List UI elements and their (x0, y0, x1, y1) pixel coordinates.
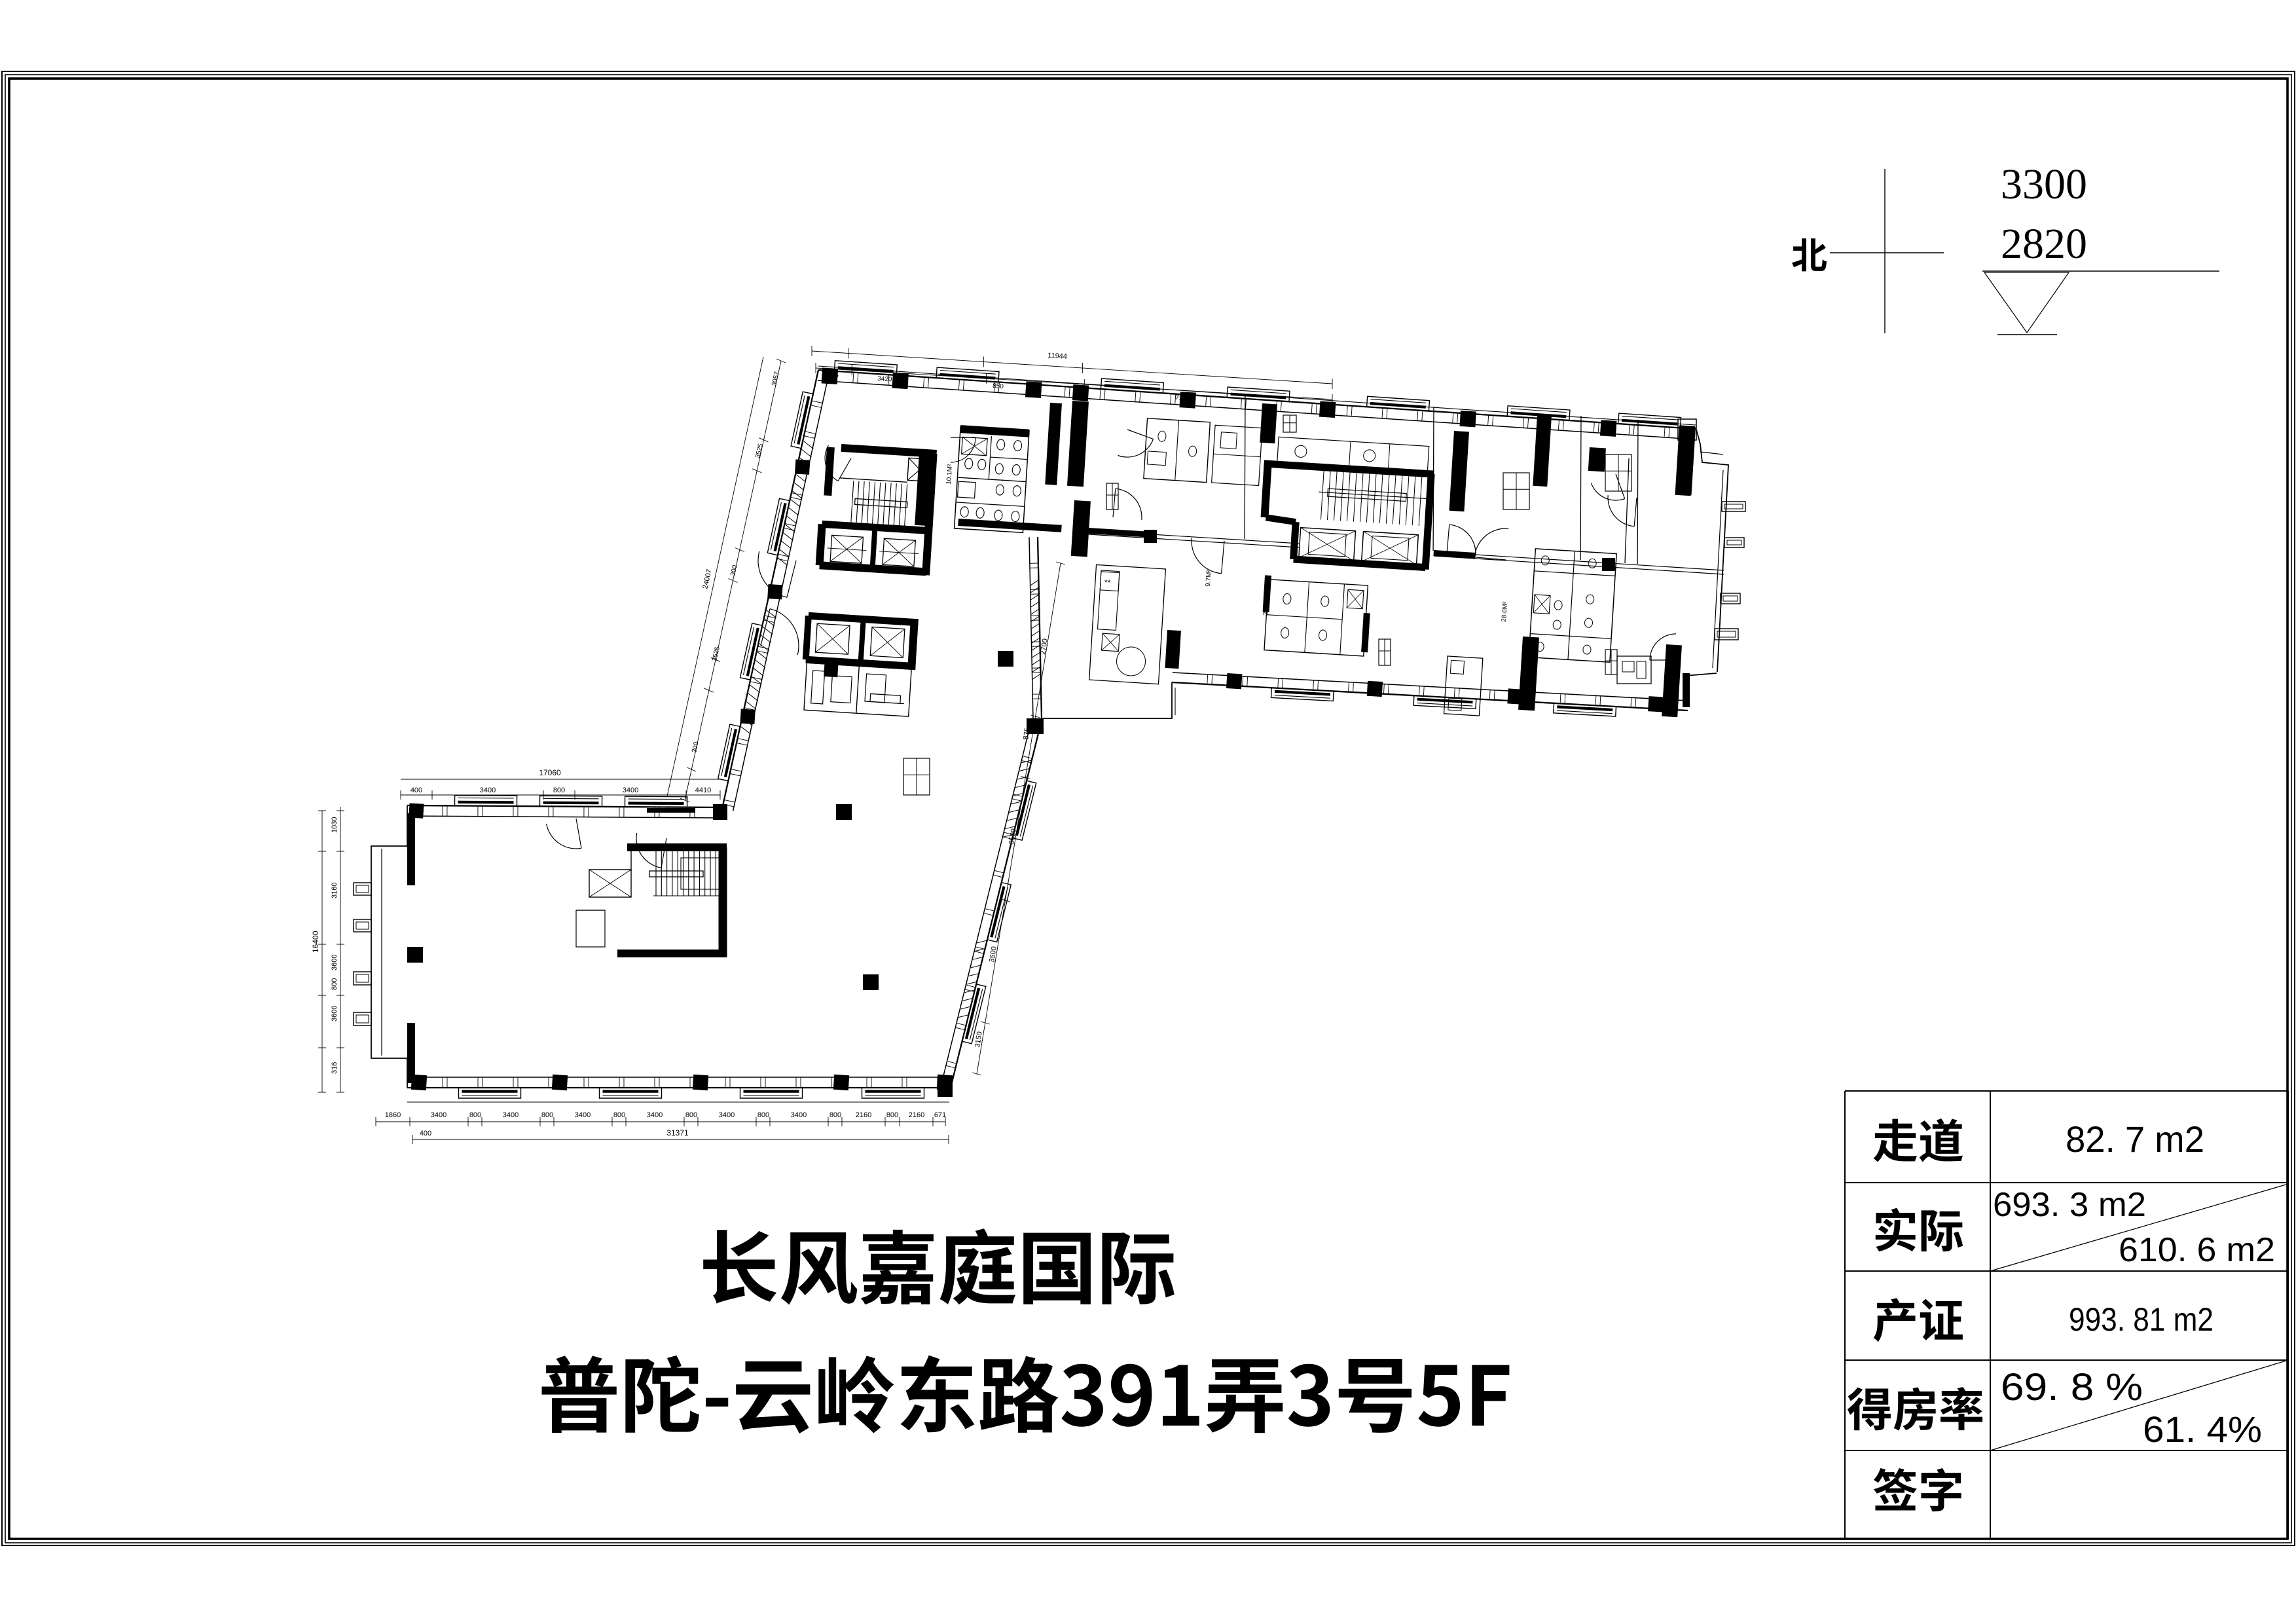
svg-text:17060: 17060 (539, 768, 561, 777)
svg-text:10.1M²: 10.1M² (945, 464, 954, 485)
svg-text:800: 800 (613, 1111, 625, 1119)
svg-text:1860: 1860 (385, 1111, 401, 1119)
svg-text:3160: 3160 (331, 883, 338, 898)
svg-text:3400: 3400 (647, 1111, 663, 1119)
svg-text:3420: 3420 (877, 375, 892, 383)
svg-text:3500: 3500 (988, 946, 998, 963)
svg-text:300: 300 (729, 564, 739, 577)
svg-text:3300: 3300 (2001, 160, 2087, 208)
svg-text:800: 800 (553, 786, 565, 794)
svg-text:615: 615 (828, 371, 839, 379)
svg-text:82. 7 m2: 82. 7 m2 (2066, 1118, 2204, 1160)
svg-text:28.0M²: 28.0M² (1501, 601, 1509, 622)
svg-text:693. 3 m2: 693. 3 m2 (1993, 1186, 2146, 1224)
svg-text:3400: 3400 (575, 1111, 591, 1119)
svg-text:3400: 3400 (791, 1111, 807, 1119)
svg-text:800: 800 (757, 1111, 769, 1119)
svg-text:31371: 31371 (666, 1128, 689, 1137)
svg-text:850: 850 (993, 382, 1004, 390)
svg-text:9.7M²: 9.7M² (1205, 569, 1213, 587)
svg-text:875: 875 (1022, 727, 1032, 740)
svg-text:11944: 11944 (1048, 352, 1067, 361)
svg-text:3500: 3500 (1008, 828, 1018, 845)
svg-text:3525: 3525 (711, 646, 721, 662)
svg-text:400: 400 (410, 786, 422, 794)
svg-text:300: 300 (691, 741, 701, 754)
svg-text:800: 800 (541, 1111, 553, 1119)
svg-text:3600: 3600 (331, 1006, 338, 1022)
svg-text:3400: 3400 (623, 786, 638, 794)
svg-text:400: 400 (420, 1130, 431, 1137)
svg-text:800: 800 (829, 1111, 841, 1119)
svg-text:2700: 2700 (1039, 638, 1049, 655)
svg-text:800: 800 (886, 1111, 898, 1119)
svg-text:**: ** (1104, 578, 1111, 587)
svg-text:800: 800 (685, 1111, 697, 1119)
svg-text:3525: 3525 (754, 443, 765, 459)
svg-text:61. 4%: 61. 4% (2143, 1409, 2262, 1450)
svg-text:671: 671 (934, 1111, 946, 1119)
svg-text:24007: 24007 (701, 568, 714, 590)
svg-text:610. 6 m2: 610. 6 m2 (2119, 1231, 2275, 1269)
svg-text:26.0M²: 26.0M² (1262, 595, 1271, 616)
svg-text:3057: 3057 (771, 371, 781, 387)
svg-text:1030: 1030 (331, 817, 338, 833)
svg-text:7150: 7150 (1175, 394, 1190, 402)
svg-text:3400: 3400 (503, 1111, 519, 1119)
svg-text:3600: 3600 (331, 955, 338, 970)
svg-text:993. 81 m2: 993. 81 m2 (2069, 1301, 2214, 1338)
svg-text:69. 8 %: 69. 8 % (2001, 1366, 2143, 1409)
svg-text:2160: 2160 (909, 1111, 924, 1119)
svg-text:800: 800 (331, 978, 338, 990)
svg-text:4410: 4410 (695, 786, 711, 794)
svg-text:3400: 3400 (431, 1111, 446, 1119)
svg-text:2160: 2160 (856, 1111, 871, 1119)
svg-text:16400: 16400 (311, 931, 320, 953)
svg-text:2820: 2820 (2001, 220, 2087, 268)
svg-text:3400: 3400 (480, 786, 496, 794)
svg-text:3150: 3150 (974, 1031, 984, 1048)
svg-text:800: 800 (469, 1111, 481, 1119)
svg-text:316: 316 (331, 1062, 338, 1074)
svg-text:3400: 3400 (719, 1111, 735, 1119)
